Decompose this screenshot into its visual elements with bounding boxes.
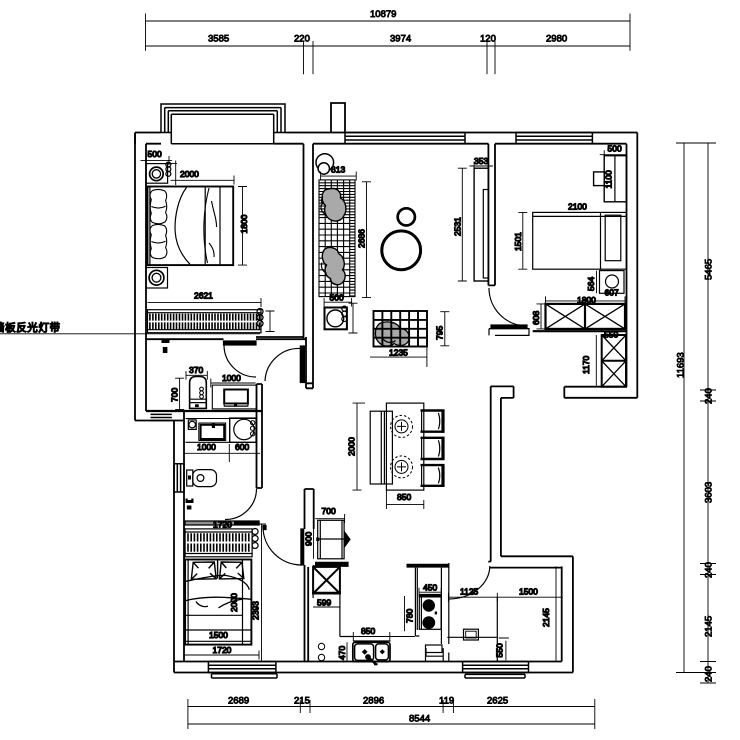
svg-text:3603: 3603 <box>704 482 715 503</box>
svg-text:600: 600 <box>235 442 249 452</box>
svg-text:1125: 1125 <box>460 586 479 596</box>
svg-text:240: 240 <box>704 562 715 578</box>
svg-text:564: 564 <box>586 277 596 291</box>
svg-text:2980: 2980 <box>546 34 567 45</box>
svg-text:2896: 2896 <box>363 696 384 707</box>
svg-text:240: 240 <box>704 666 715 682</box>
svg-text:500: 500 <box>608 144 622 154</box>
svg-text:120: 120 <box>480 34 496 45</box>
svg-text:2100: 2100 <box>568 202 587 212</box>
svg-text:780: 780 <box>405 609 415 623</box>
svg-text:450: 450 <box>423 583 437 593</box>
svg-text:3974: 3974 <box>390 34 411 45</box>
svg-text:1500: 1500 <box>519 586 538 596</box>
svg-text:795: 795 <box>435 326 445 340</box>
svg-text:1720: 1720 <box>213 520 232 530</box>
svg-text:10879: 10879 <box>370 9 396 20</box>
svg-text:240: 240 <box>704 388 715 404</box>
svg-text:1235: 1235 <box>389 348 408 358</box>
svg-text:1501: 1501 <box>513 232 523 251</box>
svg-text:215: 215 <box>294 696 310 707</box>
svg-text:墙板反光灯带: 墙板反光灯带 <box>0 321 61 334</box>
svg-text:8544: 8544 <box>409 714 430 725</box>
svg-text:2000: 2000 <box>229 593 239 612</box>
svg-text:608: 608 <box>531 311 541 325</box>
svg-text:2531: 2531 <box>453 217 463 236</box>
svg-text:1500: 1500 <box>209 630 228 640</box>
svg-text:2686: 2686 <box>357 229 367 248</box>
svg-text:1100: 1100 <box>604 170 614 189</box>
svg-text:5465: 5465 <box>704 259 715 280</box>
svg-text:1170: 1170 <box>581 355 591 374</box>
svg-text:1800: 1800 <box>577 295 596 305</box>
svg-text:607: 607 <box>605 288 619 298</box>
svg-text:500: 500 <box>330 293 344 303</box>
svg-text:2621: 2621 <box>194 291 213 301</box>
svg-text:700: 700 <box>322 506 336 516</box>
svg-text:813: 813 <box>331 165 345 175</box>
svg-text:1800: 1800 <box>239 214 249 233</box>
svg-text:470: 470 <box>337 646 347 660</box>
svg-text:370: 370 <box>189 365 203 375</box>
svg-text:700: 700 <box>170 388 180 402</box>
svg-text:850: 850 <box>361 626 375 636</box>
svg-text:850: 850 <box>397 492 411 502</box>
svg-text:353: 353 <box>474 156 488 166</box>
svg-text:2145: 2145 <box>541 608 551 627</box>
svg-text:220: 220 <box>294 34 310 45</box>
svg-text:900: 900 <box>304 532 314 546</box>
svg-text:2625: 2625 <box>487 696 508 707</box>
svg-text:119: 119 <box>439 696 454 707</box>
svg-text:2689: 2689 <box>228 696 249 707</box>
svg-text:2000: 2000 <box>180 169 199 179</box>
svg-text:2000: 2000 <box>347 437 357 456</box>
svg-text:1720: 1720 <box>213 645 232 655</box>
svg-text:550: 550 <box>495 643 505 657</box>
svg-text:3585: 3585 <box>208 34 229 45</box>
svg-text:2145: 2145 <box>704 616 715 637</box>
svg-text:1000: 1000 <box>222 373 241 383</box>
svg-text:11693: 11693 <box>676 352 687 378</box>
svg-text:2393: 2393 <box>251 601 261 620</box>
svg-text:599: 599 <box>317 598 331 608</box>
svg-text:500: 500 <box>148 149 162 159</box>
svg-text:1000: 1000 <box>197 442 216 452</box>
svg-text:550: 550 <box>604 330 618 340</box>
